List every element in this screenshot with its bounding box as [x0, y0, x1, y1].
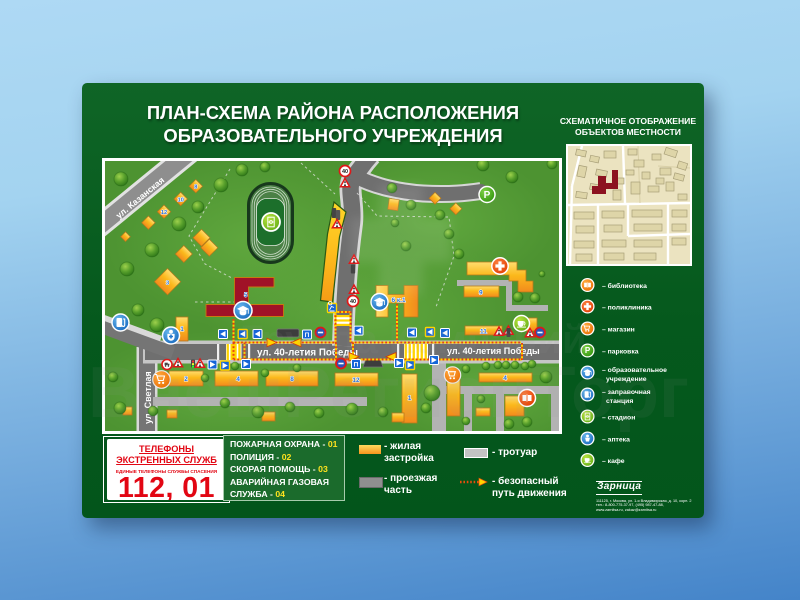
- svg-text:3: 3: [166, 281, 169, 287]
- svg-text:12: 12: [161, 210, 167, 216]
- svg-text:4: 4: [503, 375, 507, 382]
- svg-text:1: 1: [408, 395, 412, 402]
- svg-text:11: 11: [480, 329, 487, 336]
- svg-text:1: 1: [180, 326, 184, 333]
- svg-text:станция: станция: [606, 398, 633, 405]
- svg-text:– аптека: – аптека: [602, 437, 630, 444]
- svg-text:– парковка: – парковка: [602, 349, 639, 356]
- svg-text:40: 40: [350, 299, 356, 305]
- svg-text:учреждение: учреждение: [606, 376, 647, 383]
- svg-text:P: P: [585, 346, 591, 355]
- svg-text:– магазин: – магазин: [602, 327, 635, 334]
- svg-text:8: 8: [194, 185, 197, 191]
- svg-text:– поликлиника: – поликлиника: [602, 305, 652, 312]
- svg-text:6 к.1: 6 к.1: [392, 297, 406, 304]
- svg-text:2: 2: [184, 376, 188, 383]
- svg-text:12: 12: [352, 377, 360, 384]
- svg-text:– библиотека: – библиотека: [602, 282, 647, 290]
- svg-text:8: 8: [290, 376, 294, 383]
- svg-text:P: P: [484, 190, 491, 201]
- svg-text:– стадион: – стадион: [602, 415, 635, 422]
- svg-text:4: 4: [236, 376, 240, 383]
- svg-text:ул. 40-летия Победы: ул. 40-летия Победы: [447, 346, 540, 356]
- svg-text:ул. 40-летия Победы: ул. 40-летия Победы: [257, 348, 358, 359]
- svg-text:9: 9: [479, 290, 483, 297]
- svg-text:П: П: [354, 362, 359, 369]
- svg-text:40: 40: [342, 169, 348, 175]
- svg-text:– кафе: – кафе: [602, 458, 625, 465]
- svg-text:П: П: [305, 332, 310, 339]
- svg-text:– образовательное: – образовательное: [602, 366, 667, 374]
- svg-text:– заправочная: – заправочная: [602, 389, 651, 396]
- svg-text:10: 10: [178, 197, 184, 203]
